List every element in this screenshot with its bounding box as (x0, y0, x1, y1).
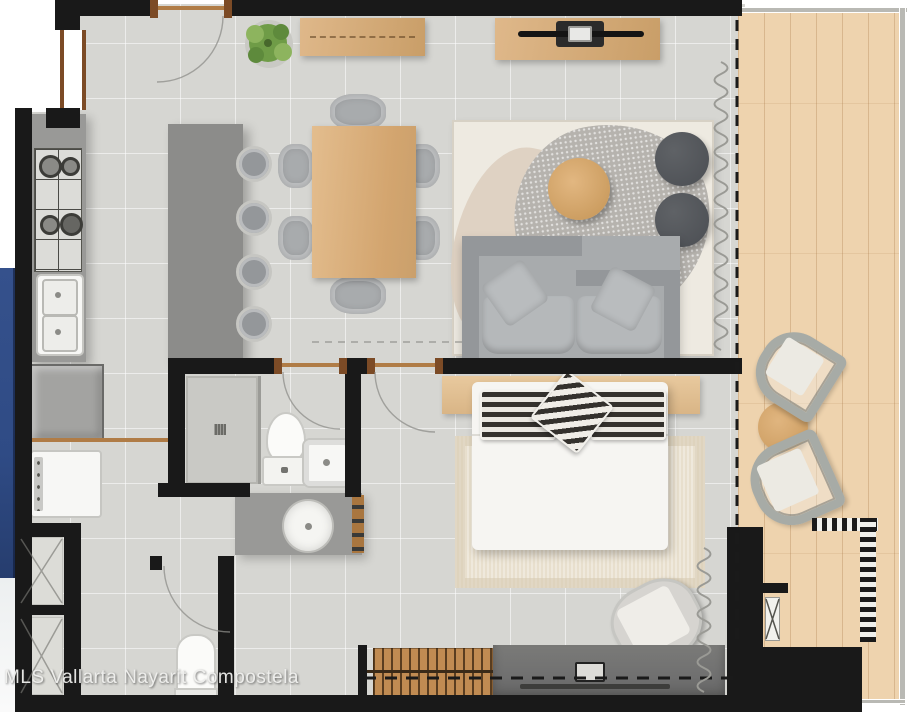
bar-stool-3 (236, 254, 272, 290)
bedroom-door-jamb-left (367, 358, 375, 374)
stove-burner-3 (40, 215, 60, 235)
balcony-railing-right (899, 7, 906, 706)
stove-burner-1 (39, 155, 62, 178)
kitchen-sink (36, 274, 84, 356)
entry-door-jamb-right (224, 0, 232, 18)
wall-left-corner-block (46, 108, 80, 128)
wall-bathroom-right (345, 374, 361, 497)
kitchen-sink-drain-1 (55, 292, 61, 298)
wall-balcony-nub (763, 583, 788, 593)
wicker-chair-2-cushion (756, 447, 820, 512)
washer-appliance (30, 364, 104, 440)
bar-stool-4 (236, 306, 272, 342)
dining-table (312, 126, 416, 278)
stove-burner-2 (61, 157, 80, 176)
sofa-chaise-back (462, 236, 582, 256)
dresser-tv-bar (520, 684, 670, 689)
outside-area-left (0, 0, 15, 270)
kitchen-island (168, 124, 243, 362)
entry-door-jamb-left (150, 0, 158, 18)
wall-top-left-corner (55, 0, 80, 30)
stove (34, 148, 82, 272)
tv-base (568, 26, 592, 42)
vessel-sink-drain (305, 523, 312, 530)
laundry-shower-tray (30, 450, 102, 518)
left-window (60, 30, 86, 110)
floor-plan: MLS Vallarta Nayarit Compostela (0, 0, 912, 712)
kitchen-sink-basin-1 (42, 279, 78, 316)
bar-stool-1 (236, 146, 272, 182)
bar-stool-2 (236, 200, 272, 236)
wicker-chair-1-cushion (764, 336, 825, 397)
bathroom-sink-drain (323, 459, 330, 466)
wall-bottom-right-mass (727, 647, 862, 712)
dining-chair-top (330, 94, 386, 130)
balcony-column (765, 597, 780, 641)
bedroom-door-threshold (375, 363, 435, 367)
bedroom-bench-rail (367, 670, 499, 673)
laundry-counter-edge (28, 438, 172, 442)
outside-area-bottom-left (0, 578, 15, 712)
wall-top-right (225, 0, 742, 16)
sideboard-console (300, 18, 425, 56)
dining-chair-left-1 (278, 144, 314, 188)
sofa-right-arm (664, 270, 680, 358)
vessel-sink-round (282, 499, 334, 553)
shower-drain (214, 424, 226, 435)
wall-bottom (15, 695, 745, 712)
wall-balcony-vertical (727, 527, 763, 649)
wall-bathroom-left (168, 374, 185, 497)
bathroom-door-jamb-right (339, 358, 347, 374)
wall-bathroom-bottom (158, 483, 250, 497)
bathroom-door-jamb-left (274, 358, 282, 374)
bathroom-door-threshold (282, 363, 339, 367)
toilet-flush-button (281, 467, 288, 473)
sofa-left-arm (462, 236, 479, 358)
shower-glass-line (258, 376, 261, 484)
exterior-building-strip (0, 268, 15, 578)
laundry-shower-fixture (34, 457, 43, 511)
sideboard-divider-line (310, 36, 415, 38)
kitchen-sink-drain-2 (55, 329, 61, 335)
entry-door-threshold (158, 6, 224, 10)
dresser-tv-screen (575, 662, 605, 682)
bedroom-door-jamb-right (435, 358, 443, 374)
sofa (462, 236, 680, 358)
balcony-railing-top (740, 7, 908, 13)
wall-wc-door-stub (150, 556, 162, 570)
coffee-table (548, 158, 610, 220)
watermark-text: MLS Vallarta Nayarit Compostela (4, 667, 299, 689)
balcony-grate-vertical (860, 518, 876, 642)
wall-closet-divider (15, 605, 79, 615)
stove-burner-4 (60, 213, 83, 236)
ottoman-1 (655, 132, 709, 186)
vanity-open-shelves (352, 495, 364, 553)
wall-divider-c (437, 358, 742, 374)
wall-bedroom-stub (358, 645, 367, 705)
bedroom-bench (373, 648, 493, 697)
wall-divider-a (168, 358, 276, 374)
dining-chair-left-2 (278, 216, 314, 260)
dining-chair-bottom (330, 276, 386, 314)
